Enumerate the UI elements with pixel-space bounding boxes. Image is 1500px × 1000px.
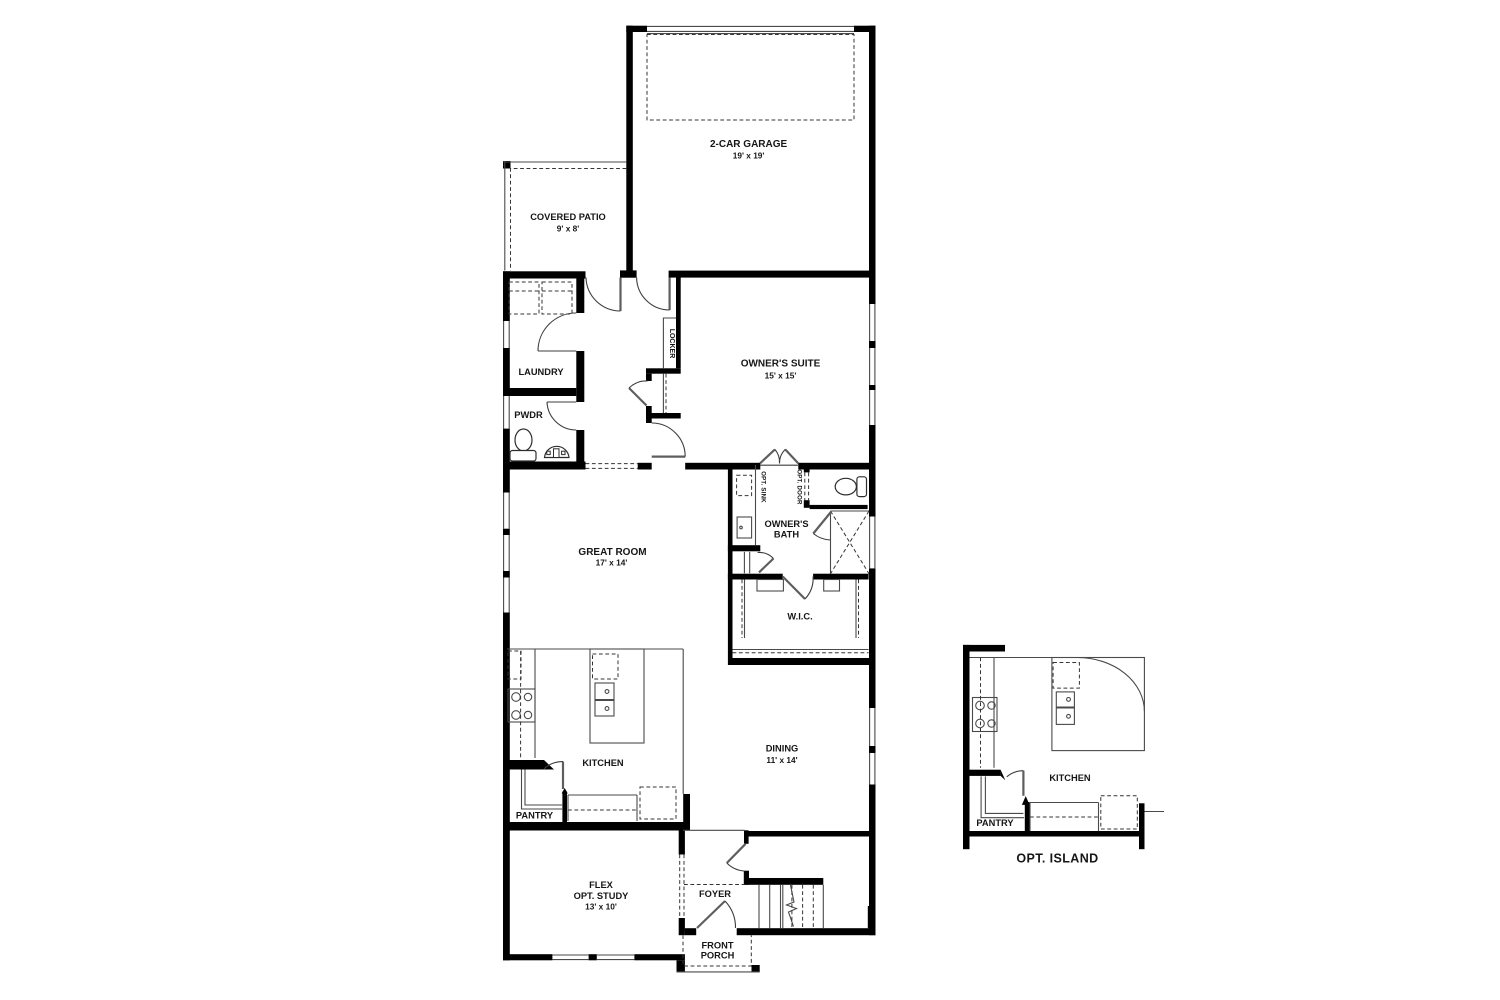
svg-text:OPT. SINK: OPT. SINK [760,471,767,503]
svg-text:COVERED PATIO: COVERED PATIO [530,212,606,222]
svg-text:FOYER: FOYER [699,889,731,899]
svg-text:PANTRY: PANTRY [516,810,554,820]
svg-text:PORCH: PORCH [701,950,735,960]
svg-text:19' x 19': 19' x 19' [733,151,765,161]
svg-text:FLEX: FLEX [589,880,614,890]
svg-text:OPT. STUDY: OPT. STUDY [574,891,630,901]
svg-text:PWDR: PWDR [514,410,543,420]
svg-text:GREAT ROOM: GREAT ROOM [578,547,646,558]
svg-text:KITCHEN: KITCHEN [1049,773,1091,783]
svg-text:LOCKER: LOCKER [668,329,675,359]
svg-text:11' x 14': 11' x 14' [766,755,797,765]
svg-text:PANTRY: PANTRY [976,818,1014,828]
svg-text:LAUNDRY: LAUNDRY [518,367,564,377]
svg-text:OPT. DOOR: OPT. DOOR [795,469,802,505]
svg-text:13' x 10': 13' x 10' [585,901,617,911]
svg-text:9' x 8': 9' x 8' [557,223,579,233]
svg-text:KITCHEN: KITCHEN [582,758,624,768]
svg-text:FRONT: FRONT [701,941,733,951]
svg-text:BATH: BATH [774,529,799,539]
svg-text:DINING: DINING [766,743,799,753]
svg-text:OWNER'S SUITE: OWNER'S SUITE [741,359,821,370]
svg-text:OWNER'S: OWNER'S [764,519,808,529]
svg-text:W.I.C.: W.I.C. [787,612,812,622]
svg-text:17' x 14': 17' x 14' [596,557,628,567]
svg-text:OPT. ISLAND: OPT. ISLAND [1016,852,1098,866]
svg-text:15' x 15': 15' x 15' [765,370,797,380]
svg-text:2-CAR GARAGE: 2-CAR GARAGE [710,139,788,150]
